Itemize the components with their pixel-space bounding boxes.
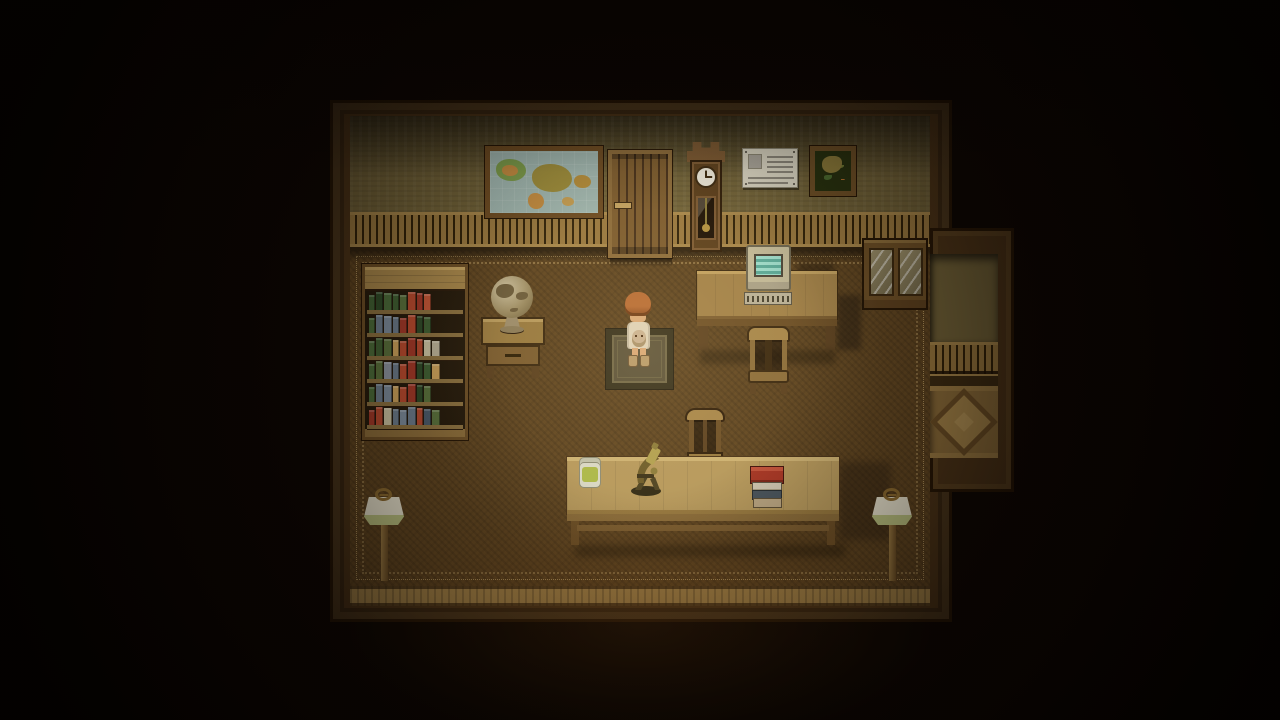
book-spine [384,339,392,356]
desk-stretcher [577,525,829,531]
clock-face-icon [695,166,717,188]
world-map[interactable] [485,146,603,218]
book-spine [376,361,383,379]
book-spine [424,363,431,379]
plaque-text-line [748,182,788,184]
book-spine [400,318,407,333]
book-spine [417,339,423,356]
book-slate [753,491,781,499]
map-landmass [574,175,591,188]
book-spine [384,362,392,379]
globe[interactable] [491,276,533,334]
floor-lamp-right [872,488,912,583]
book-spine [408,361,416,379]
lamp-shade [872,497,912,525]
clock-pendulum [696,196,716,240]
computer-monitor[interactable] [746,245,791,291]
book-spine [424,317,431,333]
book-spine [376,292,383,310]
jar[interactable] [579,457,601,488]
wall-painting[interactable] [810,146,856,196]
player-character[interactable] [622,292,655,369]
plaque-photo [748,154,762,169]
book-spine [417,385,423,402]
book-spine [393,363,399,379]
grandfather-clock[interactable] [687,142,725,254]
book-spine [376,338,383,356]
book-spine [393,409,399,425]
book-spine [384,293,392,310]
map-landmass [532,164,572,192]
alcove [930,254,998,458]
shelf-board [367,425,463,429]
book-spine [384,408,392,425]
door[interactable] [608,150,672,258]
table-leg [532,366,539,378]
desk-leg [826,326,835,350]
map-landmass [528,193,544,209]
book-spine [432,364,440,379]
bottom-wall [350,586,930,606]
book-spine [424,340,431,356]
side-table-drawer [486,345,540,366]
floor-lamp-left [364,488,404,583]
book-spine [408,384,416,402]
door-threshold-shadow [610,258,672,267]
book-spine [424,386,431,402]
book-spine [369,318,375,333]
bookshelf-shelves [367,291,463,429]
book-spine [376,384,383,402]
desk-front [567,514,839,521]
book-red [751,467,783,483]
chair-slats [689,420,721,456]
table-leg [487,366,494,378]
book-spine [369,410,375,425]
book-spine [369,387,375,402]
plaque-text-line [767,171,793,173]
book-spine [400,364,407,379]
lamp-shade [364,497,404,525]
book-spine [408,292,416,310]
book-spine [393,294,399,310]
book-spine [384,385,392,402]
chair-leg [781,383,787,394]
bookshelf-shelf [367,383,463,406]
computer-chair[interactable] [744,326,793,394]
bookshelf-shelf [367,360,463,383]
microscope[interactable] [625,441,669,497]
book-spine [400,341,407,356]
book-spine [417,293,423,310]
book-spine [376,407,383,425]
globe-base [500,326,524,333]
book-spine [432,410,440,425]
book-stack[interactable] [751,467,783,508]
book-spine [417,316,423,333]
book-spine [376,315,383,333]
alcove-wainscot [930,342,998,374]
book-spine [384,316,392,333]
lamp-pole [381,525,388,581]
cabinet-glass-pane [898,248,923,296]
player-hair [625,292,651,316]
chair-seat [748,370,789,383]
plush-toy [632,330,646,347]
player-boot [640,355,650,367]
chair-slats [750,340,787,372]
book-spine [408,338,416,356]
book-spine [393,317,399,333]
jar-contents [582,467,598,482]
pin-icon [793,151,795,153]
lamp-pole [889,525,896,581]
plaque-text-line [748,177,794,179]
desk-shadow [837,295,861,350]
plaque-text-line [767,161,793,163]
book-spine [408,407,416,425]
book-tan [754,499,781,507]
book-spine [369,341,375,356]
book-spine [417,408,423,425]
desk-apron [697,319,837,326]
bookshelf-shelf [367,406,463,429]
pin-icon [745,151,747,153]
alcove-wall [930,254,998,342]
lamp-finial-icon [375,488,392,501]
book-spine [424,409,431,425]
clock-crown [687,142,725,162]
desk-top [567,457,839,514]
bookshelf-shelf [367,314,463,337]
cabinet-glass-pane [869,248,894,296]
book-spine [408,315,416,333]
alcove-parquet-floor [930,386,998,458]
bookshelf[interactable] [362,264,468,440]
game-viewport[interactable] [0,0,1280,720]
plaque-text-line [767,166,793,168]
book-spine [417,362,423,379]
reading-chair[interactable] [681,408,729,460]
lamp-finial-icon [883,488,900,501]
desk-shadow [575,545,845,557]
player-boot [628,355,638,367]
book-spine [432,341,440,356]
book-spine [424,294,431,310]
bookshelf-cap [365,267,465,291]
computer-keyboard[interactable] [744,292,792,305]
long-desk[interactable] [567,457,839,545]
map-landmass [502,165,518,176]
bookshelf-shelf [367,337,463,360]
book-spine [400,410,407,425]
pin-icon [745,183,747,185]
alcove-baseboard [930,374,998,386]
door-handle-icon [614,202,632,209]
chair-leg [750,383,756,394]
notice-plaque[interactable] [742,148,798,188]
globe-sphere [491,276,533,318]
painting-flowers [822,156,842,173]
pin-icon [793,183,795,185]
book-spine [369,364,375,379]
book-spine [393,340,399,356]
desk-leg [699,326,708,350]
plaque-text-line [767,156,793,158]
computer-screen [754,254,783,277]
book-spine [400,295,407,310]
book-spine [369,295,375,310]
map-landmass [562,197,574,206]
glass-cabinet[interactable] [862,238,928,310]
book-white [753,483,781,491]
book-spine [400,387,407,402]
bookshelf-shelf [367,291,463,314]
book-spine [393,386,399,402]
